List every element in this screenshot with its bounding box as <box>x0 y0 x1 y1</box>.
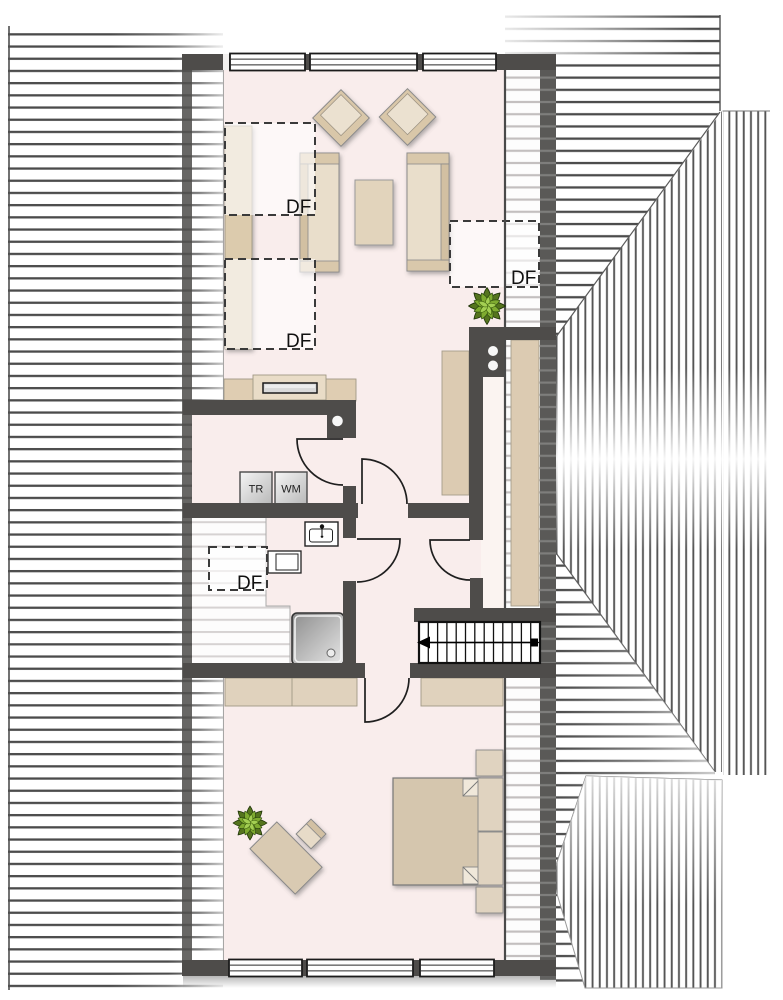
svg-text:DF: DF <box>286 197 311 218</box>
svg-text:TR: TR <box>249 484 264 496</box>
svg-text:WM: WM <box>281 484 301 496</box>
svg-text:DF: DF <box>511 268 536 289</box>
svg-text:DF: DF <box>286 331 311 352</box>
svg-text:DF: DF <box>237 573 262 594</box>
